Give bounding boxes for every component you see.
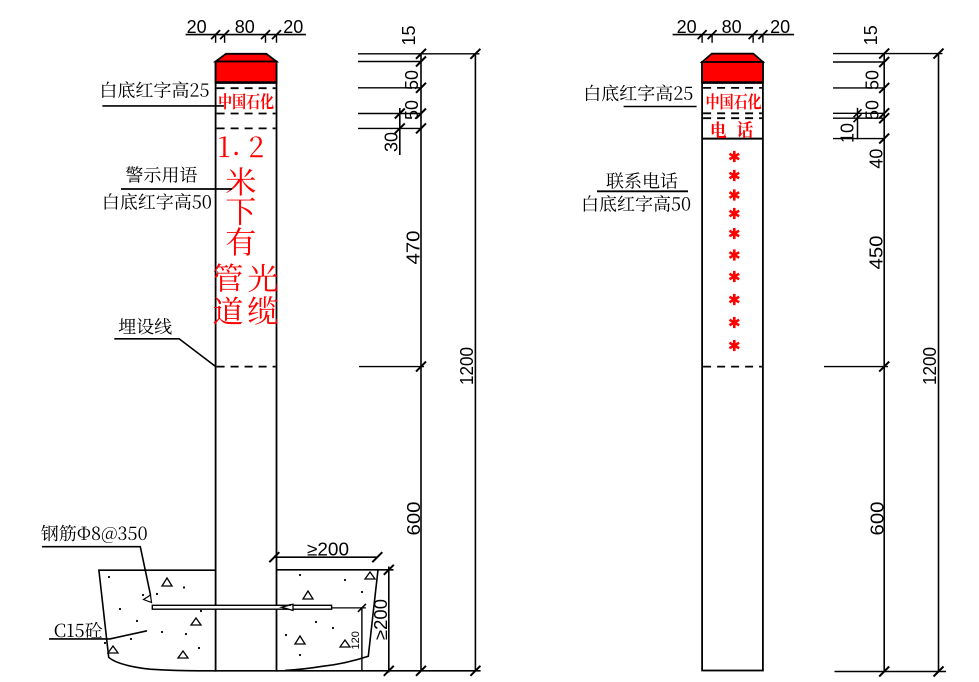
svg-text:80: 80 [235,17,255,37]
svg-text:20: 20 [187,17,207,37]
svg-text:15: 15 [399,25,419,45]
svg-text:470: 470 [403,231,423,265]
svg-text:10: 10 [837,123,857,143]
svg-text:1200: 1200 [920,347,940,385]
svg-text:20: 20 [283,17,303,37]
svg-text:20: 20 [677,17,697,37]
svg-text:15: 15 [861,25,881,45]
svg-text:≥200: ≥200 [371,599,391,640]
svg-text:40: 40 [866,149,886,169]
svg-text:450: 450 [866,236,886,270]
svg-text:50: 50 [862,100,882,120]
svg-text:≥200: ≥200 [307,539,349,559]
svg-text:30: 30 [381,132,401,152]
svg-text:50: 50 [402,70,422,90]
svg-text:20: 20 [770,17,790,37]
svg-text:50: 50 [862,70,882,90]
svg-text:50: 50 [402,100,422,120]
svg-text:1200: 1200 [457,347,477,385]
svg-text:600: 600 [867,502,887,536]
svg-text:80: 80 [722,17,742,37]
svg-text:120: 120 [350,631,362,649]
svg-text:600: 600 [404,502,424,536]
